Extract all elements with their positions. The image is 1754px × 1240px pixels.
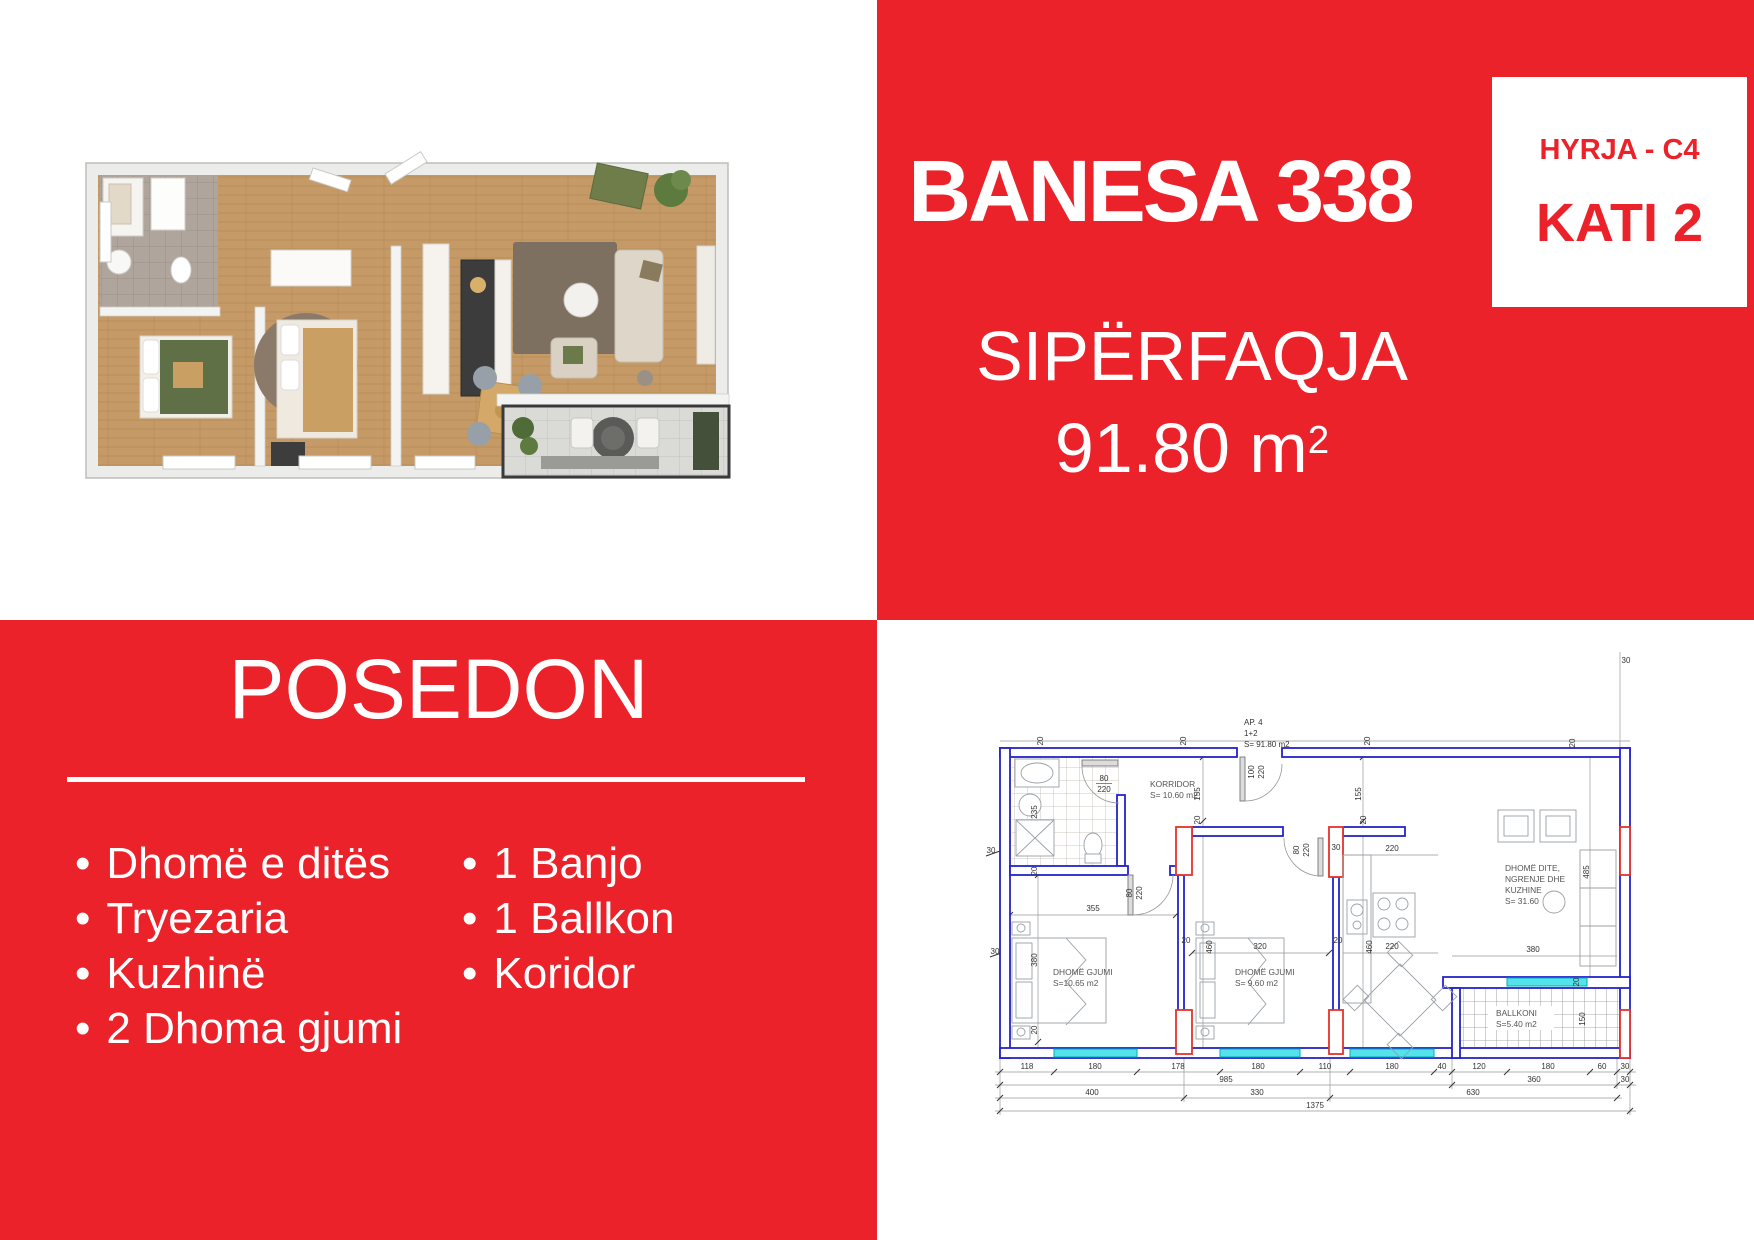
dim: 380 [1030,953,1039,967]
render-balcony-wall [497,394,729,406]
render-bed2-blanket [303,328,353,432]
dim: 180 [1541,1062,1555,1071]
list-item: Kuzhinë [75,946,455,1001]
dim: 20 [1193,815,1202,824]
render-balcony-chair2 [637,418,659,448]
render-bed1-pillow2 [143,378,159,412]
dim: 460 [1365,940,1374,954]
dim: 150 [1578,1012,1587,1026]
feature-list-left: Dhomë e ditës Tryezaria Kuzhinë 2 Dhoma … [75,836,455,1056]
dim: 180 [1385,1062,1399,1071]
dim: 120 [1472,1062,1486,1071]
render-side-table [637,370,653,386]
dim: 355 [1086,904,1100,913]
unit-label: S= 91.80 m2 [1244,740,1290,749]
divider-line [67,777,805,782]
render-kitchen-counter [423,244,449,394]
render-bath-cabinet [109,184,131,224]
technical-floorplan-svg: KORRIDOR S= 10.60 m2 DHOMË GJUMI S=10.65… [960,630,1670,1130]
area-superscript: 2 [1308,419,1329,462]
area-heading: SIPËRFAQJA [877,318,1507,395]
dim: 118 [1021,1062,1034,1071]
render-3d-floorplan [85,150,740,480]
dim: 20 [1182,936,1191,945]
dim: 400 [1085,1088,1099,1097]
door-dim: 220 [1302,843,1311,857]
room-label: S=10.65 m2 [1053,978,1099,988]
dim: 20 [1359,815,1368,824]
room-label: NGRENJE DHE [1505,874,1565,884]
flyer-page: { "colors":{ "brand_red":"#EB222A", "pla… [0,0,1754,1240]
dim: 485 [1582,865,1591,879]
dim: 180 [1088,1062,1102,1071]
list-item: Dhomë e ditës [75,836,455,891]
door-dim: 220 [1097,785,1111,794]
dim: 30 [991,947,1000,956]
dim: 20 [1572,977,1581,986]
dim: 20 [1036,736,1045,745]
render-balcony-chair [571,418,593,448]
dim: 155 [1354,787,1363,801]
room-label: S= 31.60 [1505,896,1539,906]
list-item: Koridor [462,946,842,1001]
door-dim: 100 [1247,765,1256,779]
render-wardrobe [271,250,351,286]
dim: 320 [1253,942,1267,951]
door-dim: 220 [1135,886,1144,900]
area-value: 91.80 m2 [877,410,1507,487]
render-bed1-throw [173,362,203,388]
dim: 20 [1568,738,1577,747]
room-label: S= 10.60 m2 [1150,790,1198,800]
plan-dimensions-bottom: 118 180 178 180 110 180 40 120 180 60 30… [1021,1062,1630,1110]
render-window [415,456,475,469]
dim: 40 [1438,1062,1447,1071]
render-3d-svg [85,150,740,480]
door-dim: 80 [1100,774,1109,783]
dim: 985 [1219,1075,1233,1084]
dim: 30 [1622,656,1631,665]
room-label: KORRIDOR [1150,779,1195,789]
dim: 1375 [1306,1101,1324,1110]
room-label: S=5.40 m2 [1496,1019,1537,1029]
unit-label: 1+2 [1244,729,1258,738]
dim: 30 [1621,1075,1630,1084]
render-bed1-pillow [143,340,159,374]
dim: 360 [1527,1075,1541,1084]
door-dim: 80 [1125,888,1134,897]
dim: 30 [1332,843,1341,852]
dim: 330 [1250,1088,1264,1097]
room-label: DHOMË GJUMI [1053,967,1113,977]
render-tv-console [697,246,715,364]
render-wall [391,246,401,466]
dim: 180 [1251,1062,1265,1071]
dim: 178 [1171,1062,1185,1071]
dim: 235 [1030,805,1039,819]
dim: 220 [1385,844,1399,853]
technical-floorplan: KORRIDOR S= 10.60 m2 DHOMË GJUMI S=10.65… [960,630,1670,1130]
room-label: DHOMË DITE, [1505,863,1560,873]
entry-floor-box: HYRJA - C4 KATI 2 [1492,77,1747,307]
render-toilet [171,257,191,283]
room-label: S= 9.60 m2 [1235,978,1278,988]
render-balcony-mat [541,456,659,469]
render-balcony-plant [512,417,534,439]
list-item: 1 Banjo [462,836,842,891]
dim: 155 [1193,787,1202,801]
unit-label: AP. 4 [1244,718,1263,727]
render-balcony-table-top [601,426,625,450]
room-label: DHOMË GJUMI [1235,967,1295,977]
render-chair [473,366,497,390]
render-bed2-pillow2 [281,360,299,390]
entry-label: HYRJA - C4 [1492,133,1747,167]
list-item: Tryezaria [75,891,455,946]
render-window-left [100,202,111,262]
dim: 30 [987,846,996,855]
render-window [299,456,371,469]
render-chair [467,422,491,446]
dim: 60 [1598,1062,1607,1071]
render-balcony-hedge [693,412,719,470]
dim: 220 [1385,942,1399,951]
render-shower [151,178,185,230]
room-label: BALLKONI [1496,1008,1537,1018]
door-dim: 220 [1257,765,1266,779]
dim: 20 [1334,936,1343,945]
render-wall [100,307,220,316]
render-fruit-bowl [470,277,486,293]
area-number: 91.80 m [1055,409,1308,487]
render-coffee-table [564,283,598,317]
floor-label: KATI 2 [1492,195,1747,251]
render-balcony-plant2 [520,437,538,455]
render-plant-leaf [671,170,691,190]
list-item: 2 Dhoma gjumi [75,1001,455,1056]
feature-list-right: 1 Banjo 1 Ballkon Koridor [462,836,842,1001]
dim: 20 [1363,736,1372,745]
render-window [163,456,235,469]
room-label: KUZHINE [1505,885,1542,895]
posedon-title: POSEDON [0,645,877,733]
render-armchair-pillow [563,346,583,364]
render-island-counter [495,260,511,396]
dim: 460 [1205,940,1214,954]
dim: 20 [1179,736,1188,745]
dim: 630 [1466,1088,1480,1097]
list-item: 1 Ballkon [462,891,842,946]
dim: 20 [1030,866,1039,875]
dim: 30 [1621,1062,1630,1071]
dim: 380 [1526,945,1540,954]
dim: 20 [1030,1025,1039,1034]
render-bed2-pillow [281,325,299,355]
apartment-title: BANESA 338 [877,146,1443,237]
dim: 110 [1319,1062,1332,1071]
door-dim: 80 [1292,845,1301,854]
